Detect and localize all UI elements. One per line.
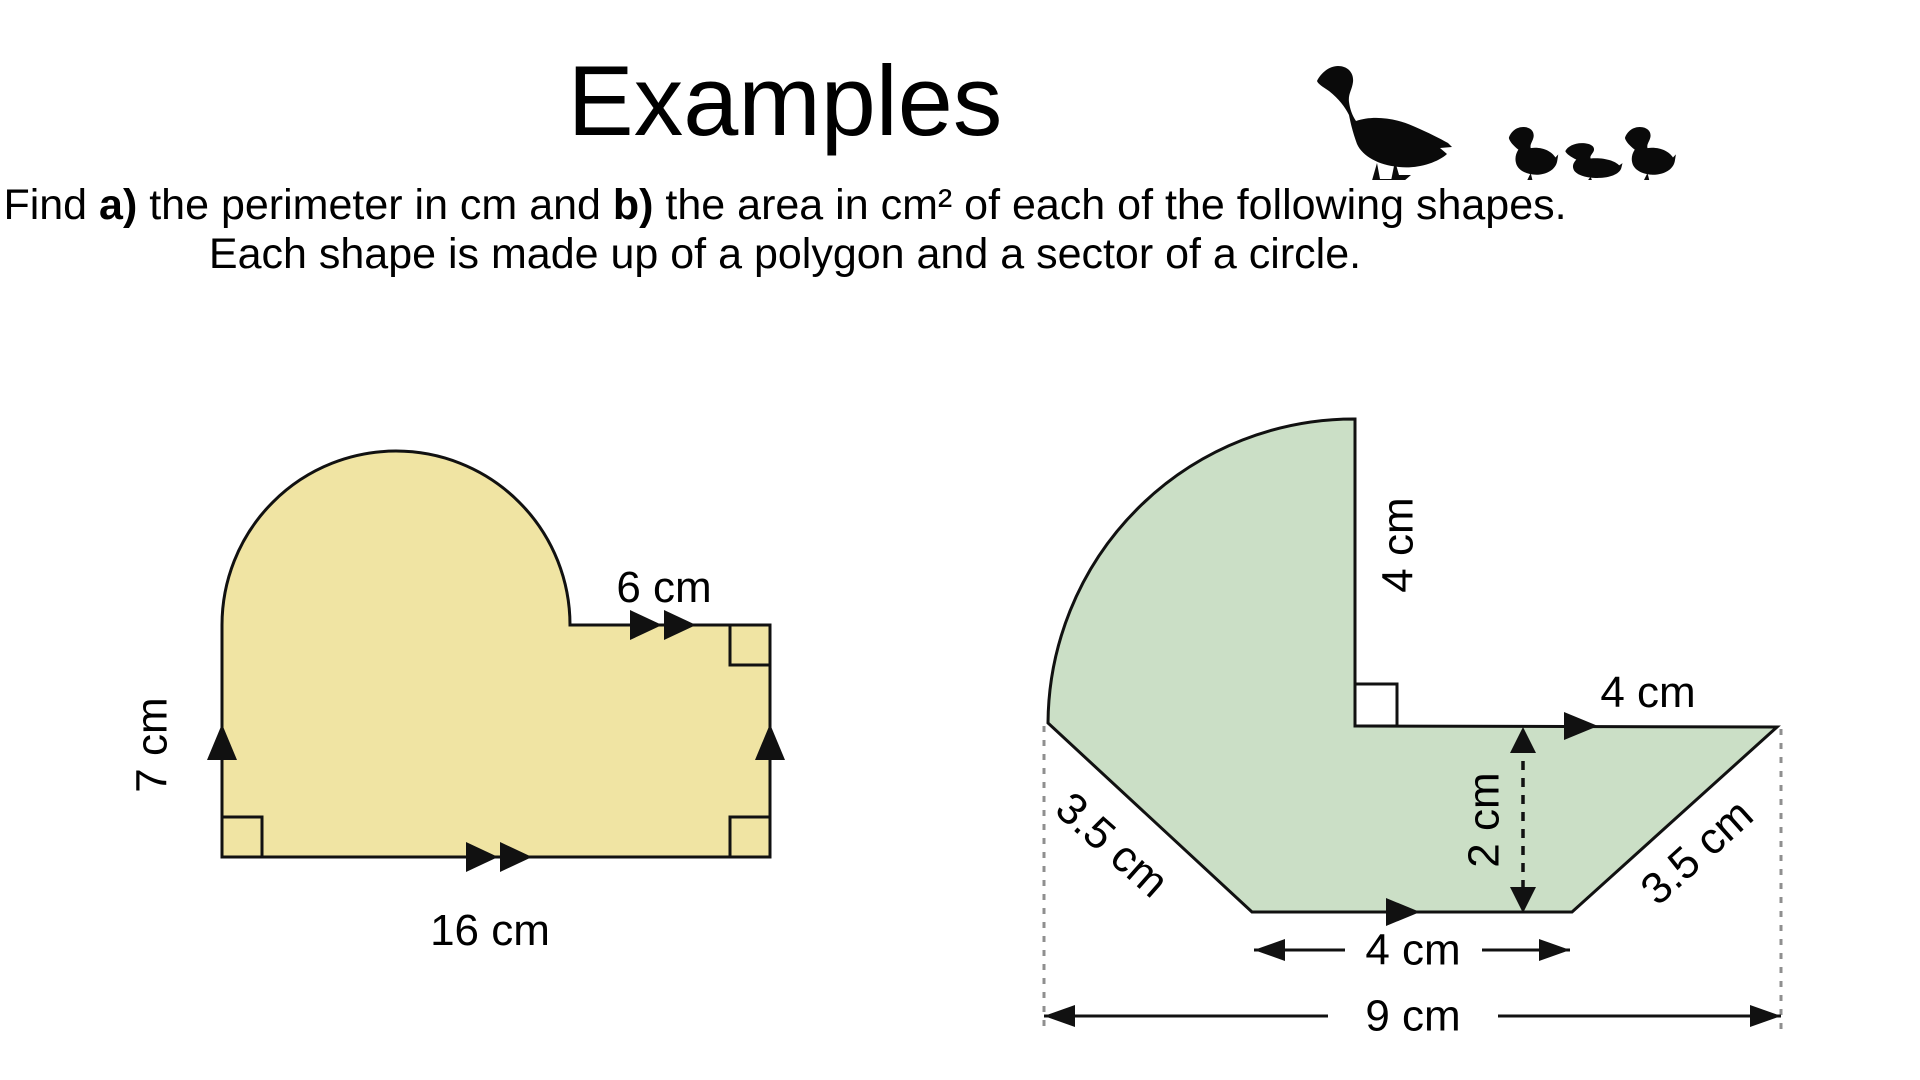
instructions-line-2: Each shape is made up of a polygon and a…	[0, 230, 1570, 279]
instr-part-a: a)	[99, 181, 137, 229]
right-angle-icon	[1355, 684, 1397, 726]
label-top-right-segment: 4 cm	[1600, 668, 1695, 717]
instr-part-b: b)	[613, 181, 654, 229]
shape-rect-semicircle: 6 cm 7 cm 16 cm	[128, 451, 786, 955]
duckling-icon	[1509, 127, 1558, 180]
label-bottom-segment: 4 cm	[1365, 926, 1460, 975]
duck-family-icon	[1300, 10, 1810, 180]
label-top-segment: 6 cm	[616, 563, 711, 612]
arrow-left-icon	[1254, 939, 1285, 961]
instr-text: the perimeter in cm and	[137, 181, 613, 229]
label-total-width: 9 cm	[1365, 992, 1460, 1041]
arrow-right-icon	[1750, 1005, 1781, 1027]
duckling-icon	[1565, 143, 1622, 180]
label-left-side: 7 cm	[128, 697, 177, 792]
duckling-icon	[1625, 127, 1676, 180]
arrow-left-icon	[1044, 1005, 1075, 1027]
instr-text: the area in cm² of each of the following…	[653, 181, 1566, 229]
arrow-right-icon	[1539, 939, 1570, 961]
label-bottom-side: 16 cm	[430, 906, 550, 955]
shape-rect-semicircle-body	[222, 451, 770, 857]
label-radius: 4 cm	[1374, 497, 1423, 592]
worksheet-slide: Examples Find a) the perimeter in cm and…	[0, 0, 1920, 1080]
instructions-line-1: Find a) the perimeter in cm and b) the a…	[0, 181, 1570, 230]
shape-trapezium-sector: 4 cm 9 cm 4 cm 4 cm 2 cm 3.5 cm 3.5 cm	[1044, 419, 1781, 1041]
mother-duck-icon	[1317, 66, 1452, 180]
shapes-diagram: 6 cm 7 cm 16 cm 4 cm	[0, 300, 1920, 1080]
instructions: Find a) the perimeter in cm and b) the a…	[0, 181, 1570, 279]
instr-text: Find	[3, 181, 99, 229]
shape-trapezium-sector-body	[1048, 419, 1777, 912]
label-height: 2 cm	[1460, 772, 1509, 867]
